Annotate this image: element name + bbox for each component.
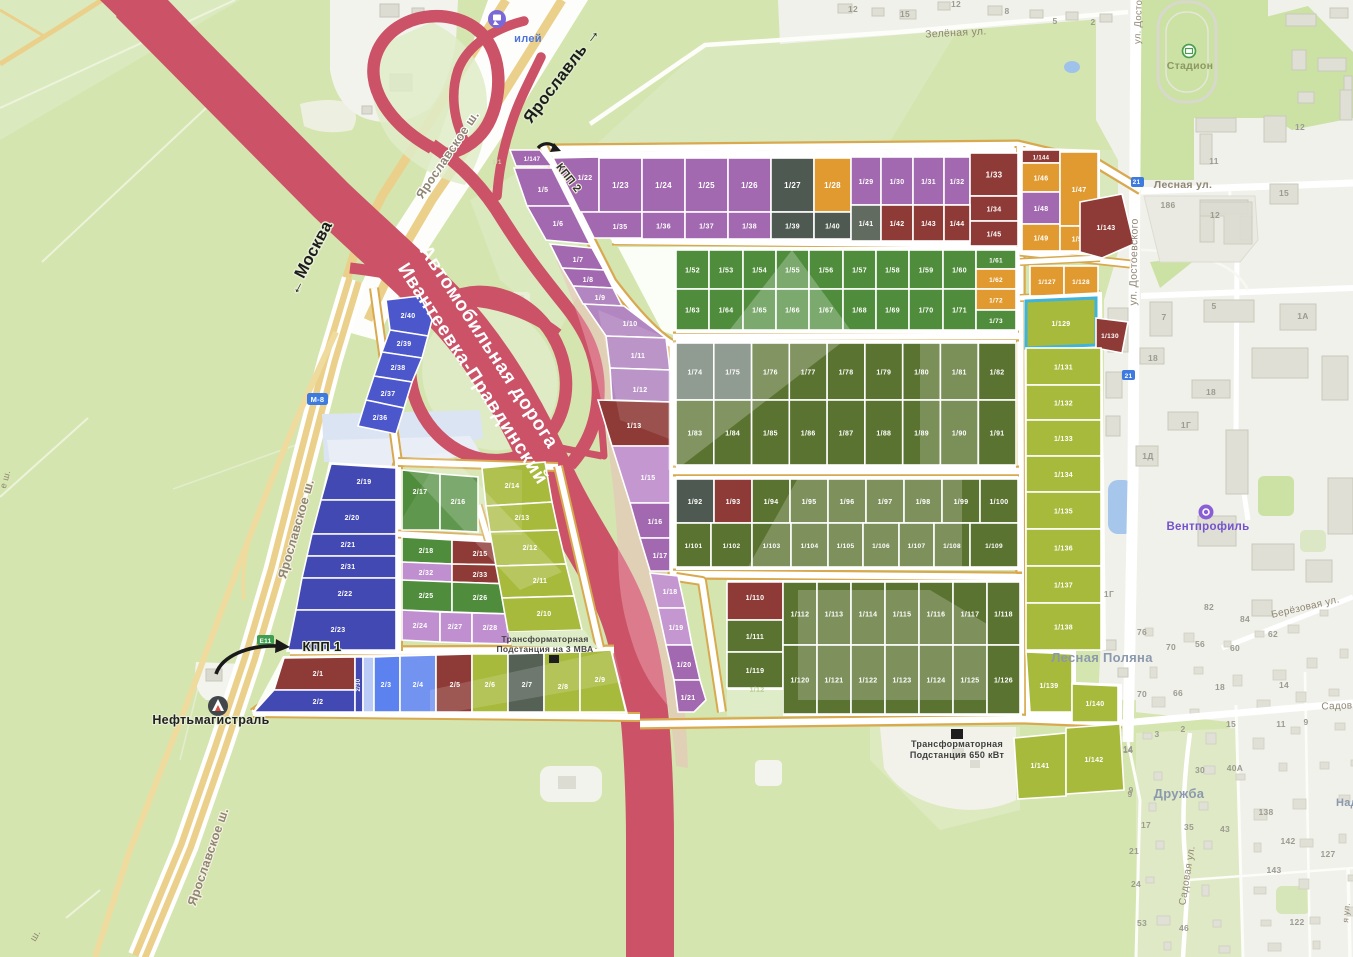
svg-text:1/101: 1/101 <box>685 543 703 550</box>
svg-text:1/79: 1/79 <box>876 370 891 377</box>
svg-text:1/34: 1/34 <box>987 207 1002 214</box>
svg-text:2/28: 2/28 <box>483 625 498 632</box>
svg-text:1/136: 1/136 <box>1054 546 1073 553</box>
svg-text:2/37: 2/37 <box>381 391 396 398</box>
svg-text:1/31: 1/31 <box>921 179 936 186</box>
svg-text:1/38: 1/38 <box>742 224 757 231</box>
svg-text:1/64: 1/64 <box>719 308 734 315</box>
svg-text:2/30: 2/30 <box>356 678 362 691</box>
svg-text:1/53: 1/53 <box>719 268 734 275</box>
svg-text:Стадион: Стадион <box>1167 60 1214 72</box>
svg-text:2/4: 2/4 <box>413 682 424 689</box>
svg-text:1/119: 1/119 <box>746 668 765 675</box>
svg-text:143: 143 <box>1266 865 1281 875</box>
svg-text:1/17: 1/17 <box>653 553 668 560</box>
svg-text:14: 14 <box>1279 680 1289 690</box>
svg-text:1/32: 1/32 <box>950 179 965 186</box>
svg-text:11: 11 <box>1276 719 1286 729</box>
svg-text:1/30: 1/30 <box>890 179 905 186</box>
svg-text:2/20: 2/20 <box>345 515 360 522</box>
svg-text:1/59: 1/59 <box>919 268 934 275</box>
svg-text:1/1: 1/1 <box>492 160 502 166</box>
svg-text:11: 11 <box>1209 156 1219 166</box>
svg-text:24: 24 <box>1131 879 1141 889</box>
svg-text:Лесная Поляна: Лесная Поляна <box>1051 650 1153 665</box>
svg-text:1/144: 1/144 <box>1033 156 1050 162</box>
svg-text:18: 18 <box>1215 682 1225 692</box>
svg-text:1/69: 1/69 <box>885 308 900 315</box>
svg-text:1/9: 1/9 <box>595 295 606 302</box>
svg-text:Трансформаторная: Трансформаторная <box>911 739 1003 749</box>
svg-text:1/5: 1/5 <box>538 187 549 194</box>
svg-text:Дружба: Дружба <box>1154 786 1205 801</box>
svg-text:Нефтьмагистраль: Нефтьмагистраль <box>152 713 269 727</box>
svg-text:1/147: 1/147 <box>524 157 541 163</box>
svg-text:8: 8 <box>1004 6 1009 16</box>
svg-text:2/1: 2/1 <box>313 671 324 678</box>
svg-text:2/27: 2/27 <box>448 624 463 631</box>
svg-text:2/3: 2/3 <box>381 682 392 689</box>
svg-text:1/24: 1/24 <box>655 181 672 190</box>
svg-text:2/33: 2/33 <box>473 572 488 579</box>
svg-text:1/16: 1/16 <box>648 519 663 526</box>
svg-text:66: 66 <box>1173 688 1183 698</box>
svg-text:1/48: 1/48 <box>1034 206 1049 213</box>
svg-text:1Д: 1Д <box>1142 451 1153 461</box>
svg-text:1Г: 1Г <box>1181 420 1191 430</box>
svg-text:1/61: 1/61 <box>989 258 1003 265</box>
svg-text:122: 122 <box>1289 917 1304 927</box>
svg-text:9: 9 <box>1127 789 1132 799</box>
svg-text:12: 12 <box>848 4 858 14</box>
svg-text:15: 15 <box>900 9 910 19</box>
svg-text:1/26: 1/26 <box>741 181 758 190</box>
svg-text:1/20: 1/20 <box>677 662 692 669</box>
svg-text:2/40: 2/40 <box>401 313 416 320</box>
svg-text:1/62: 1/62 <box>989 277 1003 284</box>
svg-text:1/68: 1/68 <box>852 308 867 315</box>
svg-text:2/26: 2/26 <box>473 595 488 602</box>
svg-text:70: 70 <box>1166 642 1176 652</box>
svg-text:1/44: 1/44 <box>950 221 965 228</box>
svg-text:1/6: 1/6 <box>553 221 564 228</box>
svg-text:1/49: 1/49 <box>1034 236 1049 243</box>
svg-text:илей: илей <box>514 33 542 45</box>
svg-text:Лесная ул.: Лесная ул. <box>1154 179 1212 191</box>
svg-text:1/130: 1/130 <box>1101 333 1119 340</box>
svg-text:17: 17 <box>1141 820 1151 830</box>
svg-text:43: 43 <box>1220 824 1230 834</box>
svg-text:7: 7 <box>1161 312 1166 322</box>
svg-text:40А: 40А <box>1227 763 1244 773</box>
svg-text:1/78: 1/78 <box>839 370 854 377</box>
svg-text:1/12: 1/12 <box>750 687 765 694</box>
svg-text:ул. Достоевского: ул. Достоевского <box>1127 218 1141 305</box>
svg-text:1/92: 1/92 <box>688 499 703 506</box>
svg-text:я ул.: я ул. <box>1340 902 1352 923</box>
svg-text:1/43: 1/43 <box>921 221 936 228</box>
svg-text:1/88: 1/88 <box>876 431 891 438</box>
svg-text:76: 76 <box>1137 627 1147 637</box>
svg-text:1/8: 1/8 <box>583 277 594 284</box>
svg-text:1/102: 1/102 <box>723 543 741 550</box>
svg-text:1/25: 1/25 <box>698 181 715 190</box>
svg-text:5: 5 <box>1052 16 1057 26</box>
svg-text:138: 138 <box>1258 807 1273 817</box>
svg-text:1/111: 1/111 <box>746 634 764 641</box>
svg-text:Трансформаторная: Трансформаторная <box>501 634 588 644</box>
svg-text:1/135: 1/135 <box>1054 509 1073 516</box>
svg-text:2/21: 2/21 <box>341 542 356 549</box>
svg-text:46: 46 <box>1179 923 1189 933</box>
svg-text:1/138: 1/138 <box>1054 625 1073 632</box>
svg-text:1/36: 1/36 <box>656 224 671 231</box>
svg-text:1/60: 1/60 <box>952 268 967 275</box>
svg-text:Е11: Е11 <box>259 638 271 645</box>
svg-text:1/37: 1/37 <box>699 224 714 231</box>
svg-text:15: 15 <box>1226 719 1236 729</box>
svg-text:56: 56 <box>1195 639 1205 649</box>
svg-text:2/36: 2/36 <box>373 415 388 422</box>
svg-text:18: 18 <box>1206 387 1216 397</box>
svg-text:1/84: 1/84 <box>725 431 740 438</box>
svg-text:1/15: 1/15 <box>641 475 656 482</box>
svg-text:127: 127 <box>1320 849 1335 859</box>
svg-text:53: 53 <box>1137 918 1147 928</box>
svg-text:1/40: 1/40 <box>825 224 840 231</box>
svg-text:1/142: 1/142 <box>1084 757 1103 764</box>
svg-text:1/132: 1/132 <box>1054 401 1073 408</box>
svg-text:1/63: 1/63 <box>685 308 700 315</box>
svg-text:2/38: 2/38 <box>391 365 406 372</box>
svg-text:2: 2 <box>1090 17 1095 27</box>
svg-text:9: 9 <box>1303 717 1308 727</box>
svg-text:1/52: 1/52 <box>685 268 700 275</box>
svg-text:1/127: 1/127 <box>1038 279 1056 286</box>
svg-text:1/45: 1/45 <box>987 232 1002 239</box>
svg-text:1/35: 1/35 <box>613 224 628 231</box>
svg-text:1/110: 1/110 <box>746 595 765 602</box>
svg-text:КПП 1: КПП 1 <box>303 639 342 654</box>
svg-text:2/31: 2/31 <box>341 564 356 571</box>
svg-text:14: 14 <box>1123 744 1133 754</box>
svg-text:84: 84 <box>1240 614 1250 624</box>
svg-text:1/58: 1/58 <box>885 268 900 275</box>
svg-text:21: 21 <box>1133 179 1141 186</box>
svg-text:1/23: 1/23 <box>612 181 629 190</box>
svg-text:70: 70 <box>1137 689 1147 699</box>
svg-text:1/118: 1/118 <box>994 612 1013 619</box>
svg-text:15: 15 <box>1279 188 1289 198</box>
svg-text:2/10: 2/10 <box>537 611 552 618</box>
svg-text:1/71: 1/71 <box>952 308 967 315</box>
svg-text:Садов: Садов <box>1321 700 1352 712</box>
svg-text:1А: 1А <box>1297 311 1308 321</box>
svg-text:35: 35 <box>1184 822 1194 832</box>
svg-text:1/93: 1/93 <box>726 499 741 506</box>
svg-text:2/22: 2/22 <box>338 591 353 598</box>
svg-text:1/19: 1/19 <box>669 625 684 632</box>
svg-text:1/100: 1/100 <box>989 499 1008 506</box>
svg-text:1/28: 1/28 <box>824 181 841 190</box>
svg-text:1/70: 1/70 <box>919 308 934 315</box>
svg-text:1/22: 1/22 <box>578 175 593 182</box>
svg-text:1/133: 1/133 <box>1054 436 1073 443</box>
svg-text:Над: Над <box>1336 797 1353 809</box>
svg-text:1/137: 1/137 <box>1054 583 1073 590</box>
svg-text:1/46: 1/46 <box>1034 176 1049 183</box>
svg-text:1/91: 1/91 <box>990 431 1005 438</box>
svg-text:2/2: 2/2 <box>313 699 324 706</box>
svg-text:1/33: 1/33 <box>986 171 1003 180</box>
svg-text:82: 82 <box>1204 602 1214 612</box>
svg-text:1/7: 1/7 <box>573 257 584 264</box>
svg-text:1/134: 1/134 <box>1054 472 1073 479</box>
svg-text:2/32: 2/32 <box>419 570 434 577</box>
svg-text:1/29: 1/29 <box>859 179 874 186</box>
svg-text:1/129: 1/129 <box>1051 321 1070 328</box>
svg-text:21: 21 <box>1129 846 1139 856</box>
svg-text:1/73: 1/73 <box>989 318 1003 325</box>
svg-text:1/41: 1/41 <box>859 221 874 228</box>
svg-text:1/54: 1/54 <box>752 268 767 275</box>
svg-text:21: 21 <box>1125 373 1133 380</box>
svg-text:30: 30 <box>1195 765 1205 775</box>
svg-text:60: 60 <box>1230 643 1240 653</box>
svg-text:1/141: 1/141 <box>1030 763 1049 770</box>
svg-text:1/56: 1/56 <box>819 268 834 275</box>
svg-text:12: 12 <box>1295 122 1305 132</box>
svg-text:12: 12 <box>951 0 961 9</box>
svg-text:1/18: 1/18 <box>663 589 678 596</box>
svg-text:2/25: 2/25 <box>419 593 434 600</box>
svg-text:2/23: 2/23 <box>331 627 346 634</box>
svg-text:ул. Досто: ул. Досто <box>1132 0 1145 44</box>
svg-text:18: 18 <box>1148 353 1158 363</box>
svg-text:Подстанция 650 кВт: Подстанция 650 кВт <box>910 750 1005 760</box>
svg-text:1Г: 1Г <box>1104 589 1114 599</box>
svg-text:186: 186 <box>1160 200 1175 210</box>
svg-text:2/39: 2/39 <box>397 341 412 348</box>
svg-text:142: 142 <box>1280 836 1295 846</box>
svg-text:1/87: 1/87 <box>839 431 854 438</box>
svg-text:1/128: 1/128 <box>1072 279 1090 286</box>
svg-text:М-8: М-8 <box>311 395 325 404</box>
svg-text:1/57: 1/57 <box>852 268 867 275</box>
svg-text:5: 5 <box>1211 301 1216 311</box>
svg-text:1/21: 1/21 <box>681 695 696 702</box>
svg-text:1/109: 1/109 <box>985 543 1003 550</box>
svg-text:2/24: 2/24 <box>413 623 428 630</box>
svg-text:2/19: 2/19 <box>357 479 372 486</box>
svg-text:1/139: 1/139 <box>1039 683 1058 690</box>
svg-text:1/143: 1/143 <box>1096 225 1115 232</box>
svg-text:1/42: 1/42 <box>890 221 905 228</box>
svg-text:1/86: 1/86 <box>801 431 816 438</box>
svg-text:2: 2 <box>1180 724 1185 734</box>
svg-text:1/82: 1/82 <box>990 370 1005 377</box>
svg-text:2/18: 2/18 <box>419 548 434 555</box>
svg-text:1/126: 1/126 <box>994 678 1013 685</box>
svg-text:12: 12 <box>1210 210 1220 220</box>
svg-text:1/72: 1/72 <box>989 298 1003 305</box>
svg-text:1/27: 1/27 <box>784 181 801 190</box>
svg-text:Вентпрофиль: Вентпрофиль <box>1166 521 1249 533</box>
svg-text:Подстанция на 3 МВА: Подстанция на 3 МВА <box>497 644 594 654</box>
svg-text:1/94: 1/94 <box>764 499 779 506</box>
svg-text:3: 3 <box>1154 729 1159 739</box>
svg-text:1/85: 1/85 <box>763 431 778 438</box>
svg-text:1/140: 1/140 <box>1085 701 1104 708</box>
svg-text:1/39: 1/39 <box>785 224 800 231</box>
svg-text:1/131: 1/131 <box>1054 365 1073 372</box>
svg-text:62: 62 <box>1268 629 1278 639</box>
svg-text:1/47: 1/47 <box>1072 187 1087 194</box>
